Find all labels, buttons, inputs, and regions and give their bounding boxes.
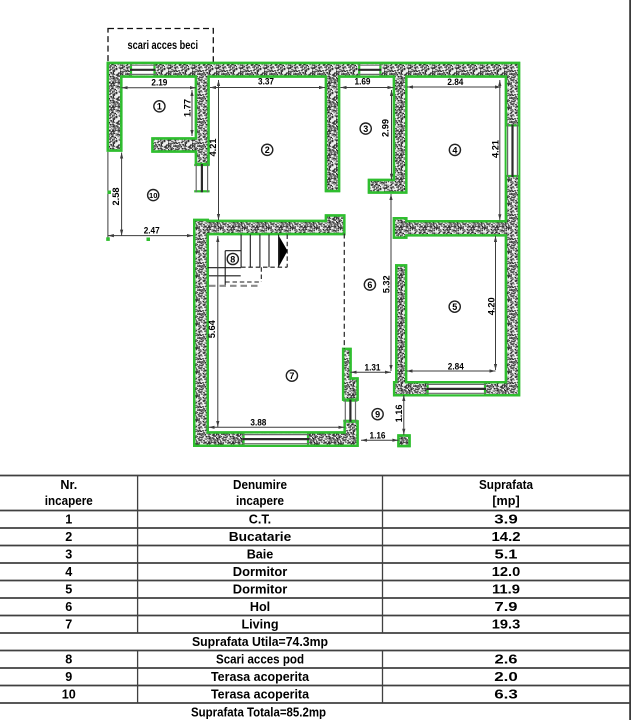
svg-text:Living: Living	[241, 617, 278, 631]
svg-text:2.6: 2.6	[495, 652, 518, 666]
svg-text:3.88: 3.88	[250, 417, 266, 427]
svg-text:8: 8	[65, 652, 72, 666]
svg-text:12.0: 12.0	[492, 565, 521, 579]
svg-text:1.31: 1.31	[365, 362, 381, 372]
svg-text:2.47: 2.47	[144, 225, 160, 235]
svg-text:C.T.: C.T.	[249, 512, 271, 526]
svg-text:Dormitor: Dormitor	[233, 582, 288, 596]
svg-text:1: 1	[65, 512, 72, 526]
svg-text:9: 9	[65, 670, 72, 684]
svg-text:5.64: 5.64	[207, 320, 217, 338]
svg-text:Denumire: Denumire	[233, 478, 287, 492]
svg-text:incapere: incapere	[236, 494, 284, 508]
svg-text:3: 3	[363, 124, 368, 134]
svg-text:2.99: 2.99	[381, 119, 391, 137]
svg-text:4.21: 4.21	[491, 140, 501, 158]
svg-text:14.2: 14.2	[492, 530, 521, 544]
svg-text:10: 10	[62, 687, 76, 701]
svg-text:5.1: 5.1	[495, 547, 518, 561]
svg-text:7.9: 7.9	[495, 600, 518, 614]
svg-text:Terasa acoperita: Terasa acoperita	[211, 670, 310, 684]
svg-text:2.84: 2.84	[448, 362, 464, 372]
svg-text:6.3: 6.3	[494, 687, 518, 701]
svg-text:10: 10	[149, 191, 157, 200]
svg-text:2.0: 2.0	[494, 670, 518, 684]
svg-text:4.20: 4.20	[486, 297, 496, 315]
svg-text:[mp]: [mp]	[492, 494, 519, 508]
svg-text:19.3: 19.3	[492, 617, 521, 631]
svg-text:Suprafata: Suprafata	[479, 478, 534, 492]
svg-text:2: 2	[65, 530, 72, 544]
svg-text:7: 7	[65, 617, 72, 631]
svg-text:2.84: 2.84	[447, 77, 463, 87]
svg-text:Suprafata Utila=74.3mp: Suprafata Utila=74.3mp	[192, 635, 328, 649]
svg-text:5.32: 5.32	[381, 275, 391, 293]
svg-text:5: 5	[65, 582, 72, 596]
svg-text:7: 7	[289, 371, 294, 381]
svg-text:4: 4	[452, 145, 457, 155]
svg-text:5: 5	[452, 302, 457, 312]
svg-text:1.77: 1.77	[182, 99, 192, 117]
svg-text:2.19: 2.19	[151, 78, 167, 88]
svg-text:Dormitor: Dormitor	[233, 565, 288, 579]
svg-text:4.21: 4.21	[208, 139, 218, 157]
svg-text:Hol: Hol	[250, 600, 270, 614]
svg-text:Baie: Baie	[247, 547, 274, 561]
svg-text:1.16: 1.16	[394, 404, 404, 422]
svg-text:6: 6	[65, 600, 72, 614]
svg-text:6: 6	[367, 280, 372, 290]
svg-text:3: 3	[65, 547, 72, 561]
svg-text:Terasa acoperita: Terasa acoperita	[211, 687, 310, 701]
svg-text:3.37: 3.37	[258, 77, 274, 87]
svg-text:incapere: incapere	[45, 494, 93, 508]
svg-text:2.58: 2.58	[111, 188, 121, 206]
svg-text:Nr.: Nr.	[60, 478, 77, 492]
svg-text:11.9: 11.9	[492, 582, 520, 596]
svg-text:4: 4	[65, 565, 72, 579]
svg-text:Scari acces pod: Scari acces pod	[216, 652, 304, 666]
svg-text:1.69: 1.69	[355, 77, 371, 87]
svg-text:3.9: 3.9	[494, 512, 518, 526]
svg-text:Suprafata Totala=85.2mp: Suprafata Totala=85.2mp	[191, 706, 326, 720]
svg-text:scari acces beci: scari acces beci	[128, 40, 199, 52]
svg-text:8: 8	[230, 254, 235, 264]
svg-text:1.16: 1.16	[370, 431, 386, 441]
svg-text:9: 9	[375, 410, 380, 420]
svg-text:2: 2	[265, 145, 270, 155]
svg-text:Bucatarie: Bucatarie	[229, 530, 292, 544]
svg-text:1: 1	[157, 102, 162, 112]
